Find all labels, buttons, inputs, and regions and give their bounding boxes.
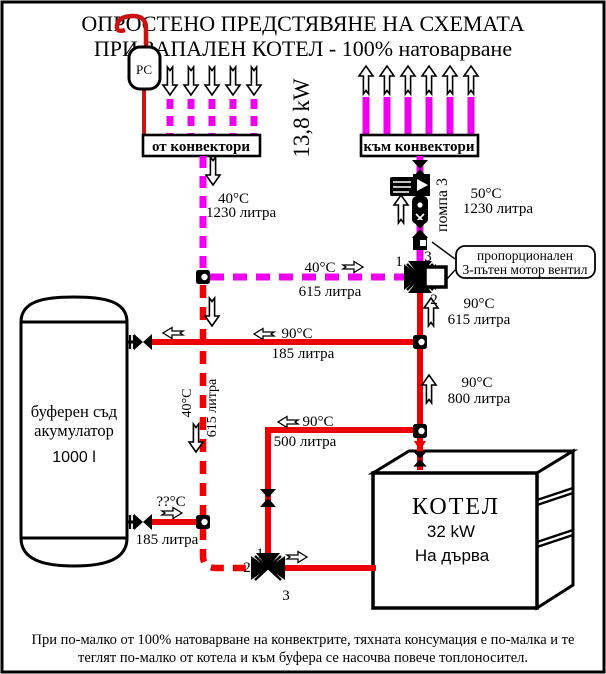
pump-label: помпа 3	[434, 178, 451, 232]
boiler: КОТЕЛ 32 kW На дърва	[373, 451, 573, 608]
tank-bottom-volume: 185 литра	[136, 532, 199, 548]
convector-power-label: 13,8 kW	[289, 78, 314, 158]
return-volume: 1230 литра	[206, 205, 277, 221]
tank-label-line1: буферен съд	[31, 402, 118, 421]
buffer-tank: буферен съд акумулатор 1000 l	[21, 297, 127, 566]
mix-port-2: 2	[243, 560, 251, 576]
valve-outlet-volume: 615 литра	[448, 312, 511, 328]
boiler-supply-volume: 500 литра	[274, 434, 337, 450]
tank-capacity: 1000 l	[52, 449, 96, 466]
to-convectors-label: към конвектори	[364, 139, 475, 155]
valve-port-1: 1	[395, 254, 403, 270]
boiler-power: 32 kW	[427, 522, 475, 541]
tank-bottom-temp: ??°C	[156, 494, 185, 510]
valve-outlet-temp: 90°C	[463, 296, 494, 312]
boiler-name: КОТЕЛ	[412, 494, 500, 520]
caption-line2: теглят по-малко от котела и към буфера с…	[78, 650, 528, 666]
pump-fitting-body	[412, 196, 428, 224]
heating-schematic-diagram: ОПРОСТЕНО ПРЕДСТЯВЯНЕ НА СХЕМАТА ПРИ ЗАП…	[0, 0, 606, 674]
note-line1: пропорционален	[477, 248, 573, 263]
vessel-label: РС	[136, 62, 152, 77]
tank-top-temp: 90°C	[281, 326, 312, 342]
valve-actuator	[425, 267, 446, 287]
valve-port3-connector	[413, 236, 427, 250]
mix-port-3: 3	[282, 588, 290, 604]
supply-volume: 1230 литра	[463, 201, 534, 217]
supply-temp: 50°C	[470, 186, 501, 202]
mix-branch-volume: 615 литра	[299, 284, 362, 300]
boiler-fuel: На дърва	[415, 546, 490, 565]
tee-fitting-icon	[413, 335, 427, 349]
tank-label-line2: акумулатор	[34, 421, 114, 440]
tee-fitting-icon	[413, 424, 427, 438]
from-convectors-label: от конвектори	[152, 139, 250, 155]
riser-volume: 800 литра	[448, 391, 511, 407]
mix-port-1: 1	[256, 546, 264, 562]
valve-port-2: 2	[430, 292, 438, 308]
note-line2: 3-пътен мотор вентил	[462, 262, 587, 277]
tee-fitting-icon	[196, 515, 210, 529]
boiler-supply-temp: 90°C	[302, 414, 333, 430]
mix-branch-temp: 40°C	[304, 260, 335, 276]
riser-temp: 90°C	[461, 375, 492, 391]
valve-port-3: 3	[424, 249, 432, 265]
tank-top-volume: 185 литра	[272, 346, 335, 362]
caption-line1: При по-малко от 100% натоварване на конв…	[32, 632, 575, 648]
return-drop-volume: 615 литра	[205, 378, 220, 437]
schematic-page: ОПРОСТЕНО ПРЕДСТЯВЯНЕ НА СХЕМАТА ПРИ ЗАП…	[0, 0, 606, 674]
tee-fitting-icon	[196, 270, 210, 284]
boiler-side-face	[537, 451, 573, 608]
return-drop-temp: 40°C	[180, 389, 195, 418]
